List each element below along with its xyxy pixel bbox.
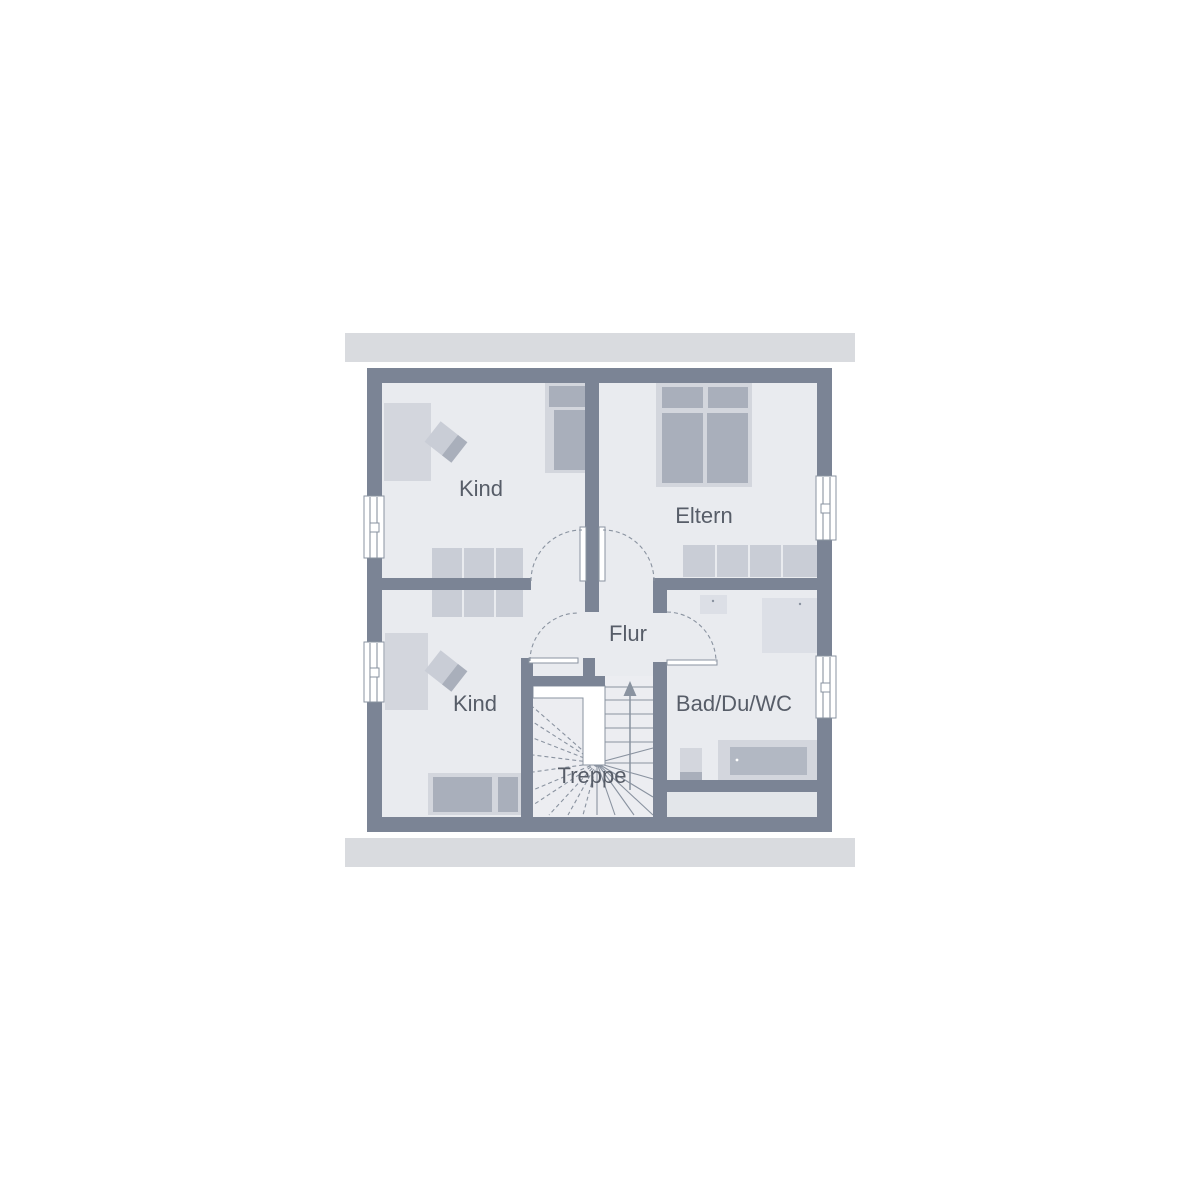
- window-right-lower: [816, 656, 836, 718]
- door-leaf: [580, 527, 586, 581]
- knee-wall-strip: [667, 792, 817, 817]
- floor-plan-page: Kind Eltern Flur Kind Bad/Du/WC Treppe: [0, 0, 1200, 1200]
- door-leaf: [667, 660, 717, 665]
- window-left-upper: [364, 496, 384, 558]
- knee-wall-bathroom: [667, 780, 817, 792]
- room-label-kind-top: Kind: [459, 476, 503, 501]
- top-roof-strip: [345, 333, 855, 362]
- floor-plan-drawing: Kind Eltern Flur Kind Bad/Du/WC Treppe: [0, 0, 1200, 1200]
- wall-flur-bad-stub: [653, 578, 667, 613]
- room-label-kind-bottom: Kind: [453, 691, 497, 716]
- window-left-lower: [364, 642, 384, 702]
- wardrobe-eltern: [683, 545, 715, 577]
- bottom-roof-strip: [345, 838, 855, 867]
- room-label-flur: Flur: [609, 621, 647, 646]
- door-leaf: [529, 658, 578, 663]
- wardrobe-kind-bottom: [432, 590, 462, 617]
- door-leaf: [599, 527, 605, 581]
- toilet: [680, 748, 702, 772]
- room-label-eltern: Eltern: [675, 503, 732, 528]
- wall-kind-eltern: [585, 383, 599, 612]
- room-label-bathroom: Bad/Du/WC: [676, 691, 792, 716]
- shower: [762, 598, 817, 653]
- sink: [700, 595, 727, 614]
- bed-kind-bottom: [385, 633, 428, 710]
- bed-kind-top-left: [384, 403, 431, 481]
- wall-kind-kind: [382, 578, 531, 590]
- window-right-upper: [816, 476, 836, 540]
- wall-eltern-bad: [666, 578, 817, 590]
- wall-stair-top: [521, 676, 605, 686]
- room-label-stairs: Treppe: [558, 763, 627, 788]
- wall-stair-bad: [653, 662, 667, 817]
- wardrobe-kind-top: [432, 548, 462, 578]
